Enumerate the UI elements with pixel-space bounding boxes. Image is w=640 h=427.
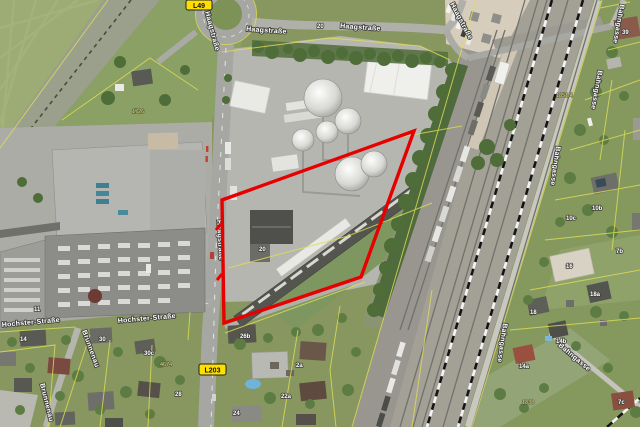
parcel-number-1726: 1726 — [132, 109, 144, 115]
house-number-7b: 7b — [616, 249, 623, 255]
house-number-14b: 14b — [556, 339, 567, 345]
house-number-30: 30 — [99, 337, 106, 343]
house-number-24: 24 — [233, 411, 240, 417]
house-number-2a: 2a — [296, 363, 303, 369]
house-number-16: 16 — [566, 264, 573, 270]
swimming-pool — [245, 379, 261, 389]
house-number-22a: 22a — [281, 394, 292, 400]
parcel-number-4674: 4674 — [160, 362, 172, 368]
house-number-20b: 20 — [259, 247, 266, 253]
map-canvas: L49 L203 Haagstraße Haagstraße Haagstraß… — [0, 0, 640, 427]
house-number-10b: 10b — [592, 206, 603, 212]
shield-l203-label: L203 — [205, 368, 221, 375]
house-number-14: 14 — [20, 337, 27, 343]
house-number-30c: 30c — [144, 351, 155, 357]
shield-l49: L49 — [186, 0, 212, 10]
parcel-number-1838: 1838 — [522, 400, 534, 406]
shield-l49-label: L49 — [193, 3, 205, 10]
house-number-39: 39 — [622, 30, 629, 36]
house-number-14a: 14a — [519, 364, 530, 370]
parcel-number-1851-4: 1851/4 — [556, 93, 573, 99]
house-number-28: 28 — [175, 392, 182, 398]
factory-hall-west — [0, 240, 45, 330]
house-number-18a: 18a — [590, 292, 601, 298]
shield-l203: L203 — [199, 364, 226, 375]
house-number-20: 20 — [317, 24, 324, 30]
aerial-map: L49 L203 Haagstraße Haagstraße Haagstraß… — [0, 0, 640, 427]
house-number-18: 18 — [530, 310, 537, 316]
house-number-26b: 26b — [240, 334, 251, 340]
gas-tank-large — [304, 79, 342, 117]
house-number-10c: 10c — [566, 216, 577, 222]
house-number-11: 11 — [34, 307, 41, 313]
house-number-7c: 7c — [618, 400, 625, 406]
